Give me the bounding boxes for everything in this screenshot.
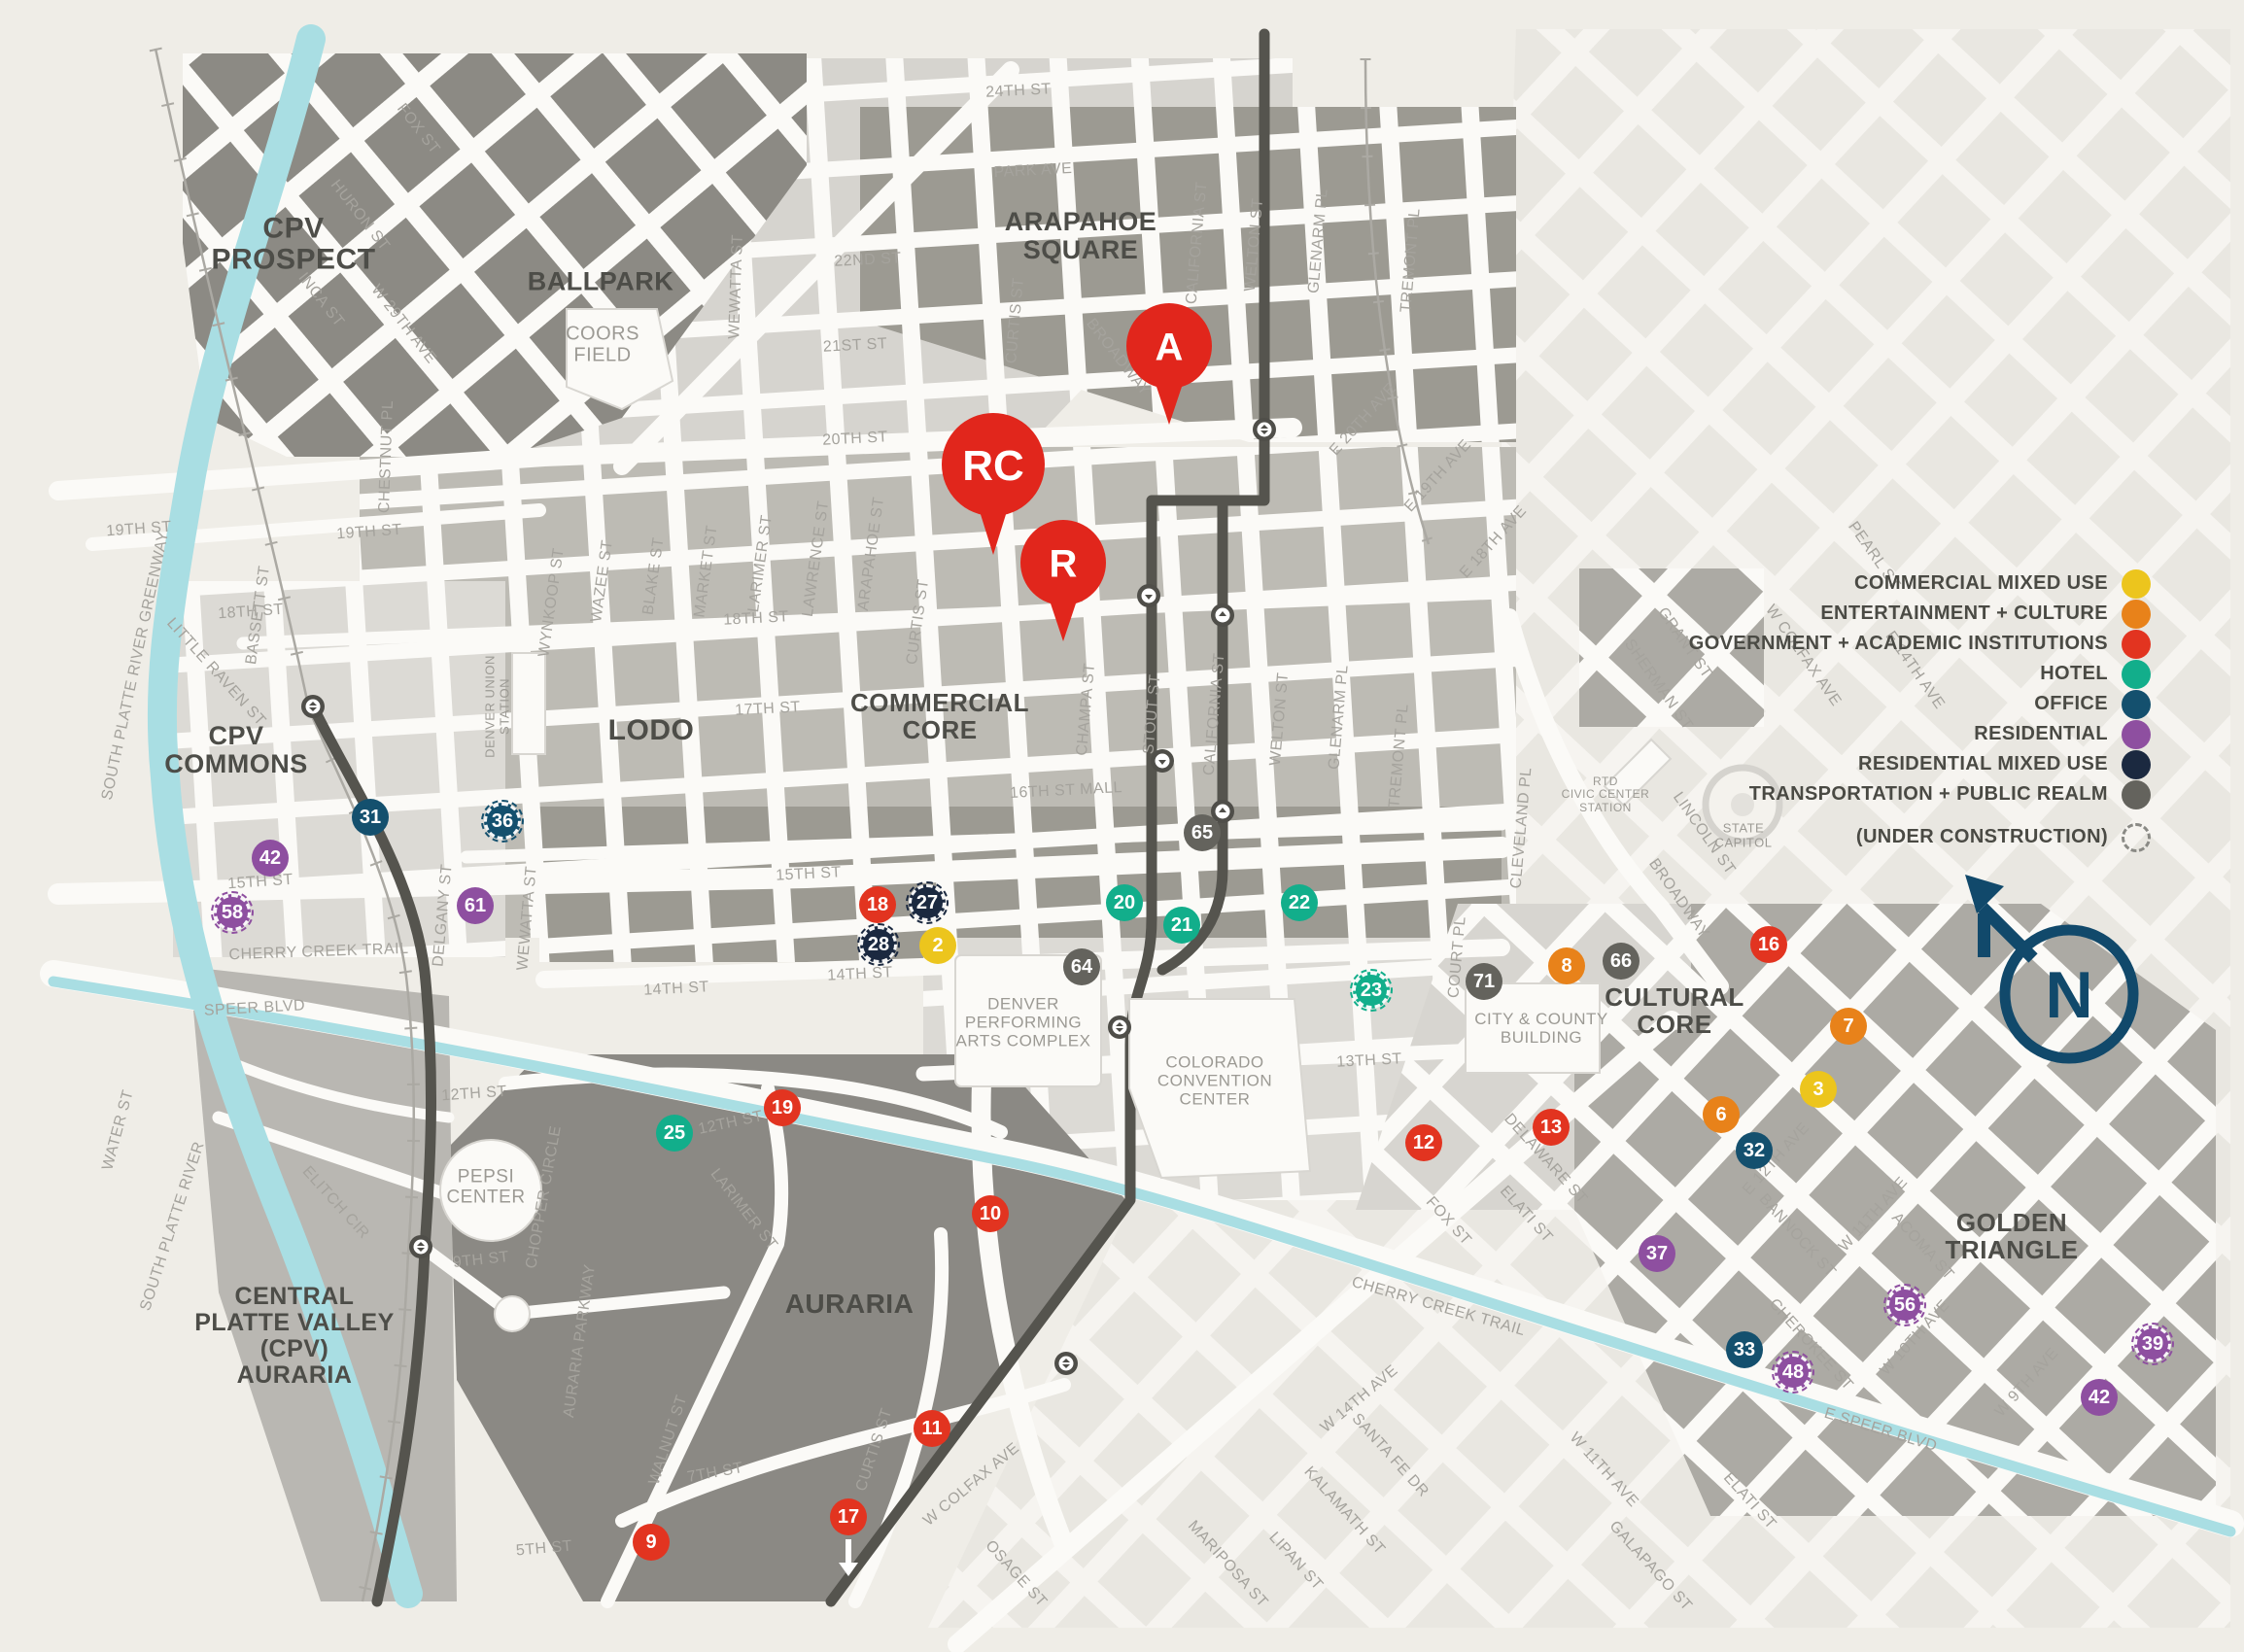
legend-row-hotel: HOTEL [1689,659,2151,689]
legend-label: TRANSPORTATION + PUBLIC REALM [1749,783,2108,806]
legend-row-government-academic: GOVERNMENT + ACADEMIC INSTITUTIONS [1689,629,2151,659]
legend-row-residential: RESIDENTIAL [1689,719,2151,749]
legend-label: ENTERTAINMENT + CULTURE [1820,602,2108,625]
legend-row-entertainment-culture: ENTERTAINMENT + CULTURE [1689,599,2151,629]
svg-text:RC: RC [962,442,1024,490]
legend-row-residential-mixed-use: RESIDENTIAL MIXED USE [1689,749,2151,779]
denver-district-map: 24TH STPARK AVE22ND ST21ST ST20TH ST19TH… [0,0,2244,1652]
legend-label: RESIDENTIAL [1974,723,2108,745]
location-pin-R[interactable]: R [1020,520,1106,641]
legend-label: COMMERCIAL MIXED USE [1854,572,2108,595]
office-dot-icon [2122,690,2151,719]
legend-under-construction: (UNDER CONSTRUCTION) [1689,822,2151,852]
map-legend: COMMERCIAL MIXED USEENTERTAINMENT + CULT… [1689,568,2151,852]
compass-north-icon: N [1965,875,2133,1058]
location-pin-RC[interactable]: RC [942,413,1045,555]
compass-letter: N [2045,958,2092,1032]
residential-mixed-use-dot-icon [2122,750,2151,779]
legend-label: HOTEL [2040,663,2108,685]
under-construction-dashed-circle-icon [2122,823,2151,852]
legend-row-transportation-public-realm: TRANSPORTATION + PUBLIC REALM [1689,779,2151,809]
entertainment-culture-dot-icon [2122,600,2151,629]
commercial-mixed-use-dot-icon [2122,569,2151,599]
location-pins: ARCR [942,303,1212,641]
svg-text:R: R [1050,542,1078,585]
transportation-public-realm-dot-icon [2122,780,2151,809]
legend-label: GOVERNMENT + ACADEMIC INSTITUTIONS [1689,633,2108,655]
hotel-dot-icon [2122,660,2151,689]
legend-label: OFFICE [2034,693,2108,715]
legend-label: (UNDER CONSTRUCTION) [1856,826,2108,848]
legend-row-office: OFFICE [1689,689,2151,719]
location-pin-A[interactable]: A [1126,303,1212,425]
svg-text:A: A [1156,326,1184,368]
residential-dot-icon [2122,720,2151,749]
government-academic-dot-icon [2122,630,2151,659]
legend-label: RESIDENTIAL MIXED USE [1858,753,2108,775]
legend-row-commercial-mixed-use: COMMERCIAL MIXED USE [1689,568,2151,599]
